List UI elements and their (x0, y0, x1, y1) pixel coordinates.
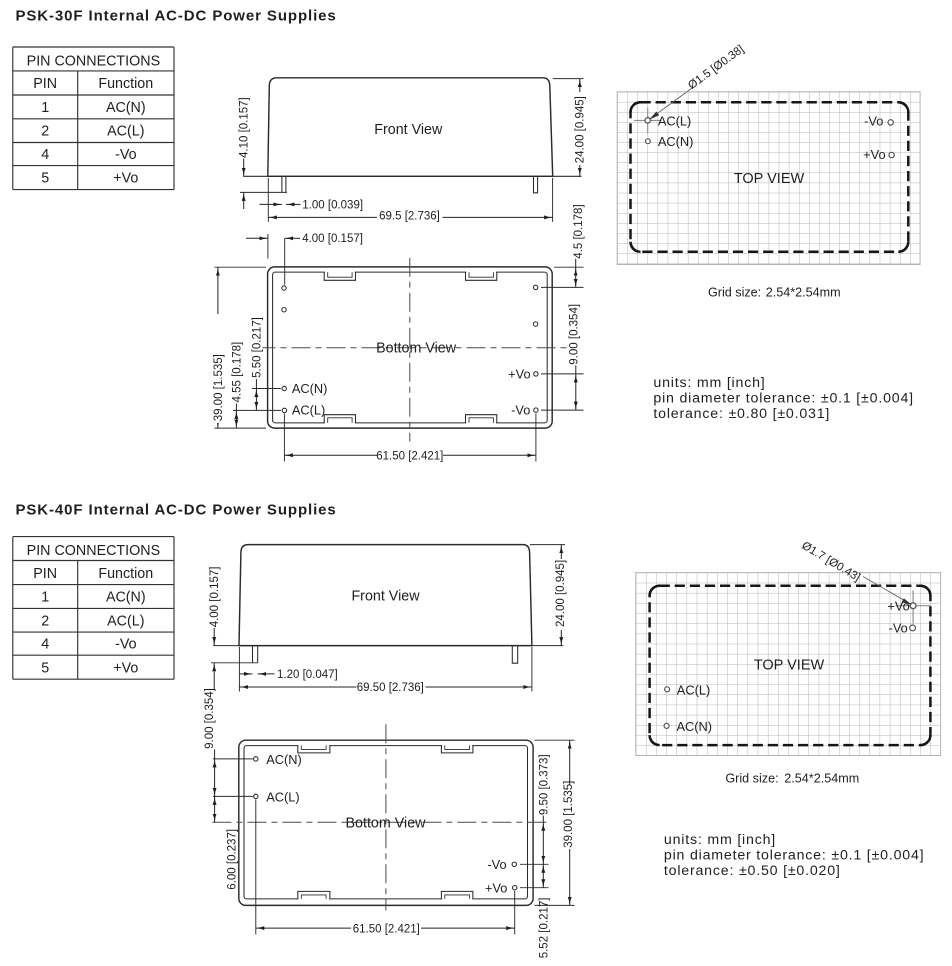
svg-text:61.50 [2.421]: 61.50 [2.421] (353, 923, 420, 935)
svg-text:5: 5 (41, 660, 49, 676)
svg-text:+Vo: +Vo (113, 660, 138, 676)
svg-text:TOP VIEW: TOP VIEW (734, 171, 805, 187)
svg-text:+Vo: +Vo (863, 147, 885, 162)
svg-text:AC(L): AC(L) (107, 124, 144, 140)
svg-text:69.50 [2.736]: 69.50 [2.736] (357, 682, 424, 694)
svg-text:AC(N): AC(N) (106, 590, 146, 606)
svg-text:2: 2 (41, 613, 49, 629)
svg-text:Function: Function (98, 76, 153, 92)
svg-text:pin diameter tolerance: ±0.1 [: pin diameter tolerance: ±0.1 [±0.004] (664, 848, 925, 864)
svg-text:24.00 [0.945]: 24.00 [0.945] (555, 560, 567, 627)
svg-text:AC(N): AC(N) (106, 100, 146, 116)
svg-text:1: 1 (41, 100, 49, 116)
svg-text:-Vo: -Vo (864, 114, 883, 129)
svg-text:AC(N): AC(N) (292, 381, 328, 396)
svg-text:39.00 [1.535]: 39.00 [1.535] (563, 781, 575, 848)
svg-text:6.00 [0.237]: 6.00 [0.237] (226, 829, 238, 890)
svg-text:PIN: PIN (33, 76, 57, 92)
svg-text:+Vo: +Vo (113, 171, 138, 187)
svg-text:4: 4 (41, 147, 49, 163)
svg-text:39.00 [1.535]: 39.00 [1.535] (213, 354, 225, 421)
svg-text:1.20 [0.047]: 1.20 [0.047] (277, 669, 338, 681)
svg-text:AC(L): AC(L) (266, 789, 299, 804)
svg-text:AC(L): AC(L) (677, 682, 710, 697)
svg-text:1: 1 (41, 590, 49, 606)
svg-text:2.54*2.54mm: 2.54*2.54mm (766, 285, 841, 299)
svg-text:AC(N): AC(N) (677, 719, 713, 734)
svg-text:69.5 [2.736]: 69.5 [2.736] (379, 211, 440, 223)
svg-text:-Vo: -Vo (487, 857, 506, 872)
svg-text:Front View: Front View (351, 589, 420, 605)
svg-text:Front View: Front View (374, 122, 443, 138)
svg-text:units: mm [inch]: units: mm [inch] (653, 375, 765, 391)
svg-text:PSK-30F Internal AC-DC Power S: PSK-30F Internal AC-DC Power Supplies (16, 8, 337, 25)
svg-text:1.00 [0.039]: 1.00 [0.039] (302, 199, 363, 211)
svg-text:Grid size:: Grid size: (708, 285, 761, 299)
svg-text:+Vo: +Vo (508, 366, 530, 381)
svg-text:tolerance: ±0.80 [±0.031]: tolerance: ±0.80 [±0.031] (653, 406, 830, 422)
svg-text:61.50 [2.421]: 61.50 [2.421] (376, 450, 443, 462)
svg-text:+Vo: +Vo (485, 880, 507, 895)
svg-text:-Vo: -Vo (115, 147, 137, 163)
svg-text:5.50 [0.217]: 5.50 [0.217] (251, 317, 263, 378)
svg-text:4.5 [0.178]: 4.5 [0.178] (573, 204, 585, 258)
svg-text:2.54*2.54mm: 2.54*2.54mm (784, 771, 859, 785)
svg-text:-Vo: -Vo (115, 637, 137, 653)
svg-text:2: 2 (41, 124, 49, 140)
svg-text:5: 5 (41, 171, 49, 187)
svg-text:PIN: PIN (33, 566, 57, 582)
svg-text:PSK-40F Internal AC-DC Power S: PSK-40F Internal AC-DC Power Supplies (16, 501, 337, 518)
svg-text:tolerance: ±0.50 [±0.020]: tolerance: ±0.50 [±0.020] (664, 863, 841, 879)
svg-text:4.00 [0.157]: 4.00 [0.157] (302, 233, 363, 245)
svg-text:AC(L): AC(L) (292, 403, 325, 418)
svg-text:PIN CONNECTIONS: PIN CONNECTIONS (27, 53, 160, 69)
svg-text:24.00 [0.945]: 24.00 [0.945] (575, 96, 587, 163)
svg-text:Bottom View: Bottom View (346, 815, 427, 831)
svg-text:AC(L): AC(L) (107, 613, 144, 629)
svg-text:units: mm [inch]: units: mm [inch] (664, 832, 776, 848)
svg-text:9.50 [0.373]: 9.50 [0.373] (538, 754, 550, 815)
svg-text:5.52 [0.217]: 5.52 [0.217] (538, 898, 550, 959)
svg-text:4.55 [0.178]: 4.55 [0.178] (231, 342, 243, 403)
svg-text:4: 4 (41, 637, 49, 653)
svg-text:Bottom View: Bottom View (376, 340, 457, 356)
svg-text:TOP VIEW: TOP VIEW (754, 658, 825, 674)
svg-text:AC(L): AC(L) (658, 114, 691, 129)
svg-text:pin diameter tolerance: ±0.1 [: pin diameter tolerance: ±0.1 [±0.004] (653, 391, 914, 407)
svg-text:9.00 [0.354]: 9.00 [0.354] (569, 304, 581, 365)
svg-text:AC(N): AC(N) (266, 752, 302, 767)
svg-text:AC(N): AC(N) (658, 134, 694, 149)
svg-text:-Vo: -Vo (889, 621, 908, 636)
svg-text:9.00 [0.354]: 9.00 [0.354] (204, 688, 216, 749)
svg-text:PIN CONNECTIONS: PIN CONNECTIONS (27, 543, 160, 559)
svg-text:-Vo: -Vo (511, 402, 530, 417)
svg-text:Function: Function (98, 566, 153, 582)
svg-text:4.00 [0.157]: 4.00 [0.157] (209, 567, 221, 628)
svg-text:Grid size:: Grid size: (725, 771, 778, 785)
svg-text:4.10 [0.157]: 4.10 [0.157] (239, 97, 251, 158)
